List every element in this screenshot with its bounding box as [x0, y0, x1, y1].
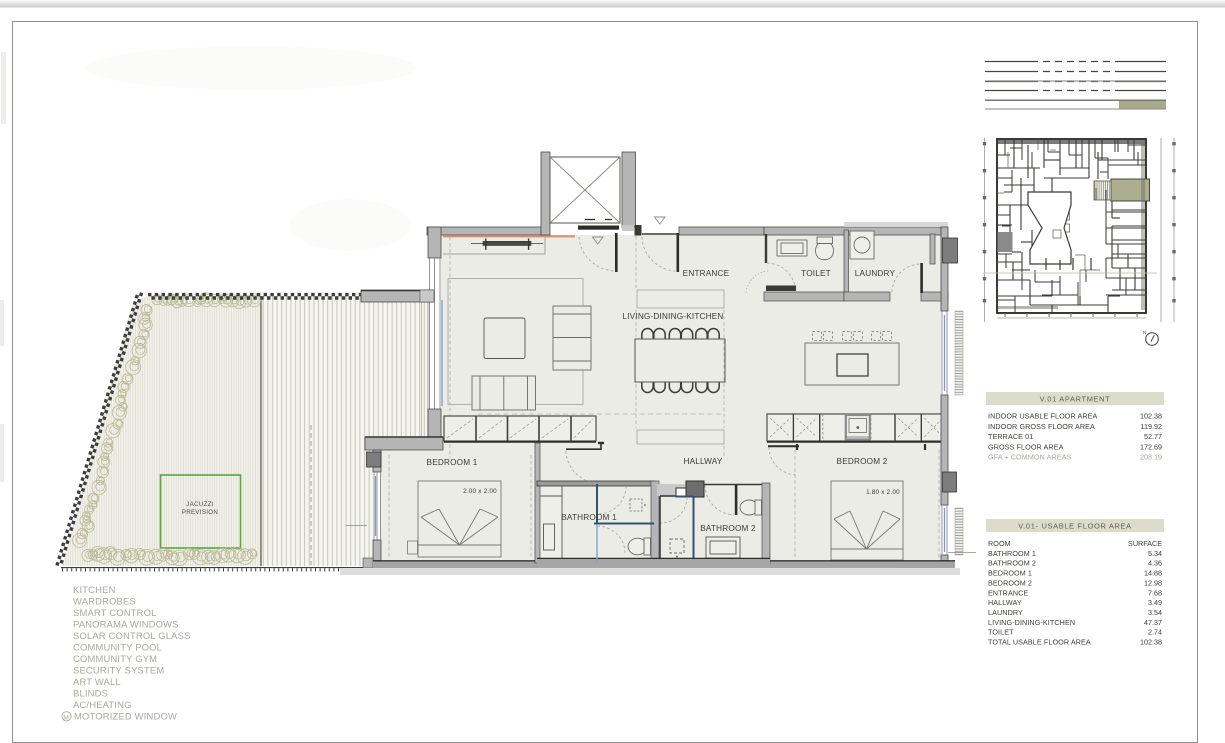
- svg-text:208.19: 208.19: [1140, 453, 1162, 462]
- svg-text:MOTORIZED WINDOW: MOTORIZED WINDOW: [74, 711, 177, 722]
- svg-text:BATHROOM 2: BATHROOM 2: [988, 559, 1036, 568]
- svg-text:GFA + COMMON AREAS: GFA + COMMON AREAS: [988, 453, 1072, 462]
- svg-text:BLINDS: BLINDS: [73, 688, 108, 699]
- svg-text:PANORAMA WINDOWS: PANORAMA WINDOWS: [73, 619, 179, 630]
- svg-text:5.34: 5.34: [1148, 549, 1162, 558]
- svg-text:BEDROOM 2: BEDROOM 2: [837, 457, 888, 466]
- svg-text:KITCHEN: KITCHEN: [73, 584, 116, 595]
- svg-text:172.69: 172.69: [1140, 442, 1162, 451]
- svg-text:WARDROBES: WARDROBES: [73, 596, 136, 607]
- svg-text:M: M: [63, 714, 68, 721]
- svg-text:COMMUNITY POOL: COMMUNITY POOL: [73, 642, 162, 653]
- svg-text:ART WALL: ART WALL: [73, 676, 121, 687]
- svg-text:LIVING-DINING-KITCHEN: LIVING-DINING-KITCHEN: [988, 618, 1075, 627]
- svg-text:HALLWAY: HALLWAY: [683, 457, 722, 466]
- svg-text:2.00 x 2.00: 2.00 x 2.00: [463, 488, 497, 495]
- svg-text:7.68: 7.68: [1148, 588, 1162, 597]
- svg-text:AC/HEATING: AC/HEATING: [73, 699, 132, 710]
- svg-text:PREVISION: PREVISION: [182, 509, 218, 516]
- svg-text:BEDROOM 2: BEDROOM 2: [988, 578, 1032, 587]
- svg-text:47.37: 47.37: [1144, 618, 1162, 627]
- svg-text:14.88: 14.88: [1144, 569, 1162, 578]
- svg-text:3.49: 3.49: [1148, 598, 1162, 607]
- svg-text:2.74: 2.74: [1148, 628, 1162, 637]
- svg-text:52.77: 52.77: [1144, 432, 1162, 441]
- svg-text:TOTAL USABLE FLOOR AREA: TOTAL USABLE FLOOR AREA: [988, 638, 1091, 647]
- svg-text:BATHROOM 1: BATHROOM 1: [988, 549, 1036, 558]
- svg-text:V.01 APARTMENT: V.01 APARTMENT: [1040, 395, 1111, 404]
- svg-text:INDOOR USABLE FLOOR AREA: INDOOR USABLE FLOOR AREA: [988, 412, 1098, 421]
- svg-text:TOILET: TOILET: [988, 628, 1014, 637]
- svg-text:LAUNDRY: LAUNDRY: [988, 608, 1023, 617]
- svg-text:N: N: [1143, 330, 1146, 335]
- svg-text:ROOM: ROOM: [988, 539, 1011, 548]
- svg-text:4.36: 4.36: [1148, 559, 1162, 568]
- svg-text:1.80 x 2.00: 1.80 x 2.00: [866, 489, 900, 496]
- svg-text:BEDROOM 1: BEDROOM 1: [988, 569, 1032, 578]
- svg-text:102.38: 102.38: [1140, 412, 1162, 421]
- svg-text:HALLWAY: HALLWAY: [988, 598, 1022, 607]
- svg-text:ENTRANCE: ENTRANCE: [683, 269, 730, 278]
- svg-text:12.98: 12.98: [1144, 578, 1162, 587]
- svg-text:BATHROOM 1: BATHROOM 1: [561, 513, 617, 522]
- svg-text:LIVING-DINING-KITCHEN: LIVING-DINING-KITCHEN: [622, 312, 723, 321]
- svg-text:V.01- USABLE FLOOR AREA: V.01- USABLE FLOOR AREA: [1018, 522, 1132, 531]
- svg-text:102.38: 102.38: [1140, 638, 1162, 647]
- svg-text:GROSS FLOOR AREA: GROSS FLOOR AREA: [988, 442, 1064, 451]
- svg-text:TOILET: TOILET: [801, 269, 831, 278]
- svg-text:LAUNDRY: LAUNDRY: [855, 269, 896, 278]
- svg-text:ENTRANCE: ENTRANCE: [988, 588, 1028, 597]
- svg-text:3.54: 3.54: [1148, 608, 1162, 617]
- svg-text:JACUZZI: JACUZZI: [186, 501, 214, 508]
- svg-text:INDOOR GROSS FLOOR AREA: INDOOR GROSS FLOOR AREA: [988, 422, 1095, 431]
- svg-text:SECURITY SYSTEM: SECURITY SYSTEM: [73, 665, 164, 676]
- svg-text:COMMUNITY GYM: COMMUNITY GYM: [73, 653, 157, 664]
- svg-text:SMART CONTROL: SMART CONTROL: [73, 607, 157, 618]
- svg-text:SOLAR CONTROL GLASS: SOLAR CONTROL GLASS: [73, 630, 191, 641]
- svg-text:BEDROOM 1: BEDROOM 1: [427, 458, 478, 467]
- svg-text:119.92: 119.92: [1141, 422, 1162, 431]
- svg-text:BATHROOM 2: BATHROOM 2: [700, 524, 756, 533]
- svg-text:TERRACE 01: TERRACE 01: [988, 432, 1033, 441]
- svg-text:SURFACE: SURFACE: [1128, 539, 1162, 548]
